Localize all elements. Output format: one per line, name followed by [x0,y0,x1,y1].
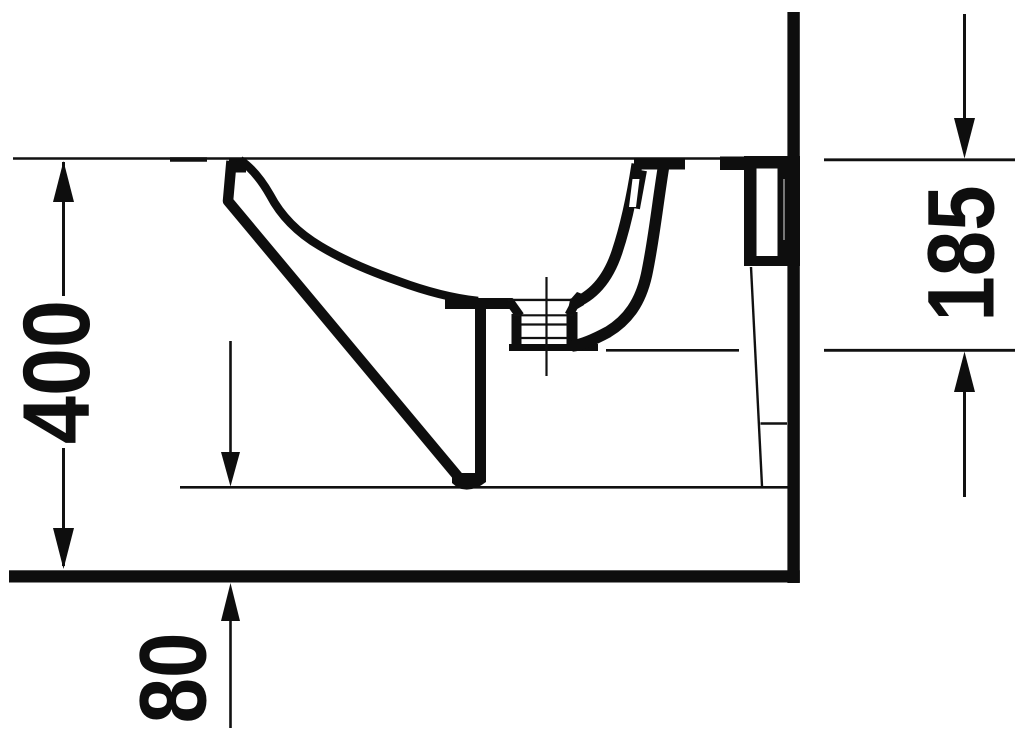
svg-text:400: 400 [4,300,110,444]
svg-text:185: 185 [908,185,1014,321]
svg-text:80: 80 [120,633,226,724]
